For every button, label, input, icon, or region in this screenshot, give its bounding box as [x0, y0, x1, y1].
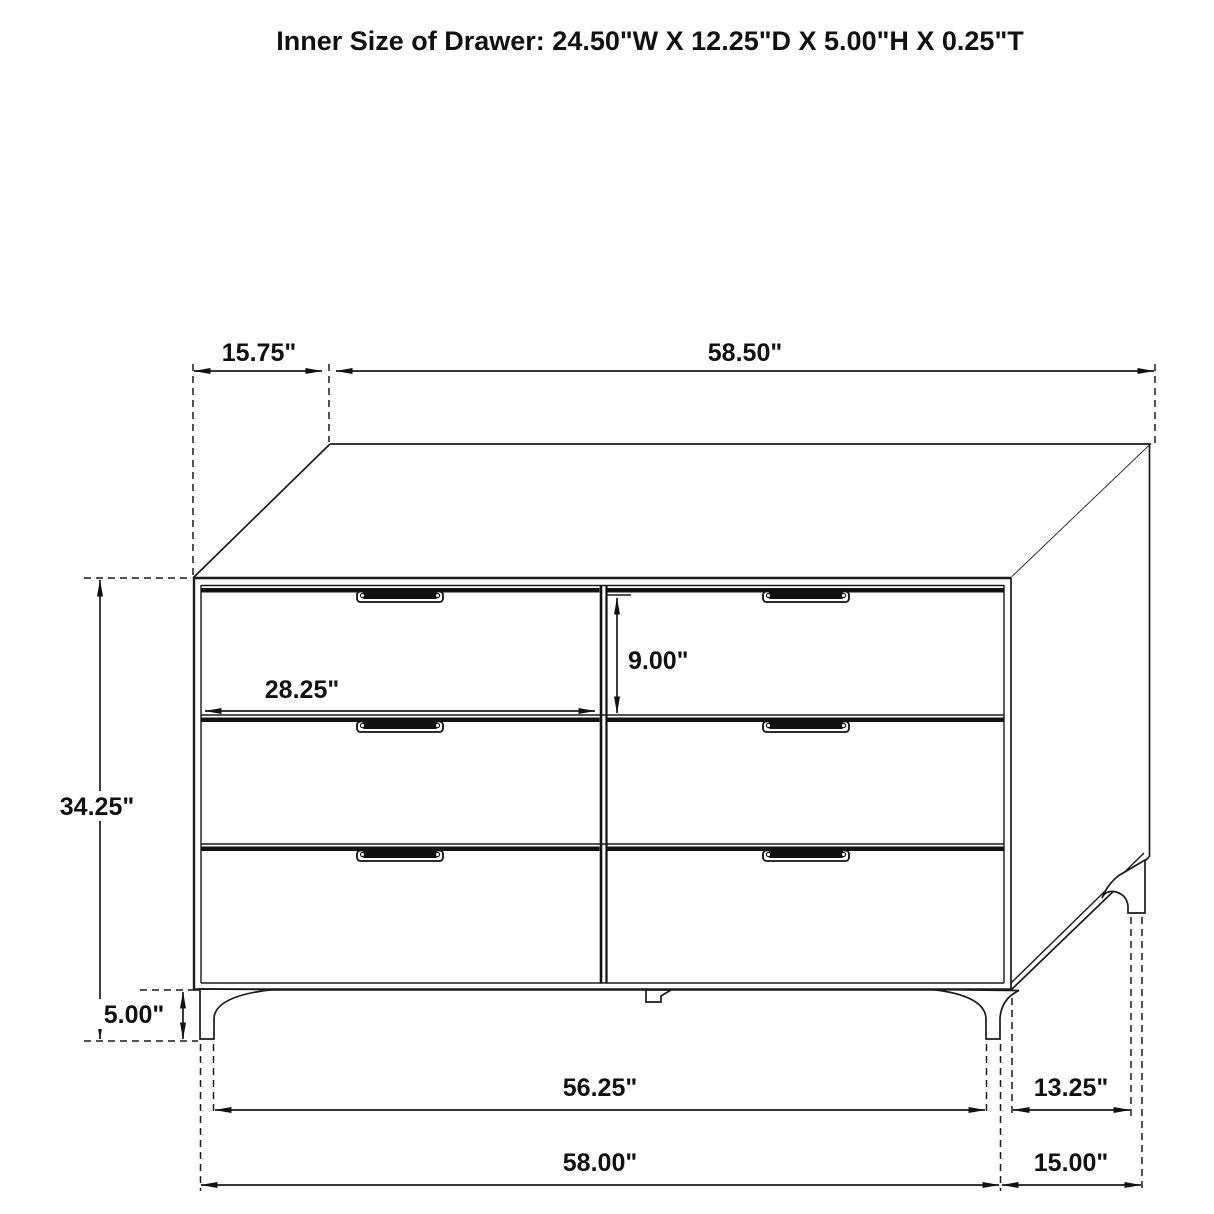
- drawer-handle-icon: [763, 851, 849, 862]
- top-face: [193, 444, 1151, 581]
- dim-label-base-outer-width: 58.00": [563, 1149, 637, 1177]
- dim-label-drawer-width: 28.25": [265, 676, 339, 704]
- drawer-handle-icon: [763, 592, 849, 603]
- drawer-handle-icon: [763, 722, 849, 733]
- center-support-leg: [646, 990, 671, 1002]
- diagram-title: Inner Size of Drawer: 24.50"W X 12.25"D …: [276, 26, 1024, 56]
- diagram-canvas: Inner Size of Drawer: 24.50"W X 12.25"D …: [0, 0, 1214, 1214]
- drawer-handle-icon: [357, 722, 443, 733]
- dim-base-inner-width: 56.25": [215, 1072, 985, 1110]
- front-right-leg: [932, 990, 1019, 1040]
- dim-side-outer-depth: 15.00": [1002, 1147, 1141, 1185]
- dim-base-outer-width: 58.00": [201, 1147, 999, 1185]
- dim-leg-height: 5.00": [92, 990, 197, 1039]
- dim-overall-height: 34.25": [48, 578, 198, 1041]
- dim-side-inner-depth: 13.25": [1013, 1072, 1130, 1110]
- dim-label-base-inner-width: 56.25": [563, 1074, 637, 1102]
- dim-label-drawer-face-height: 9.00": [628, 647, 689, 675]
- dim-label-top-width: 58.50": [708, 339, 782, 367]
- dim-top-width: 58.50": [336, 337, 1155, 443]
- drawer-handle-icon: [357, 592, 443, 603]
- front-face: [193, 578, 1011, 990]
- dim-label-side-inner-depth: 13.25": [1034, 1074, 1108, 1102]
- drawer-handle-icon: [357, 851, 443, 862]
- dresser-dimension-diagram: Inner Size of Drawer: 24.50"W X 12.25"D …: [0, 0, 1214, 1214]
- dim-label-top-depth: 15.75": [222, 339, 296, 367]
- dim-label-overall-height: 34.25": [60, 793, 134, 821]
- dim-label-leg-height: 5.00": [104, 1001, 165, 1029]
- legs: [200, 989, 1019, 1039]
- front-left-leg: [200, 989, 274, 1039]
- dim-label-side-outer-depth: 15.00": [1034, 1149, 1108, 1177]
